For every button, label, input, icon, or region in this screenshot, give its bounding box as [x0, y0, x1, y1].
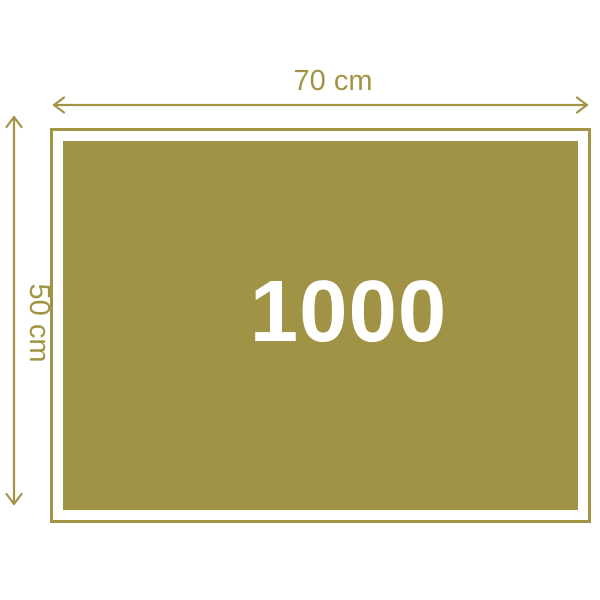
puzzle-box-fill: 1000: [63, 141, 578, 510]
puzzle-size-diagram: 70 cm 50 cm 1000: [0, 0, 600, 600]
piece-count-label: 1000: [250, 268, 448, 355]
puzzle-box-outline: 1000: [50, 128, 591, 523]
horizontal-double-arrow-icon: [50, 93, 591, 117]
